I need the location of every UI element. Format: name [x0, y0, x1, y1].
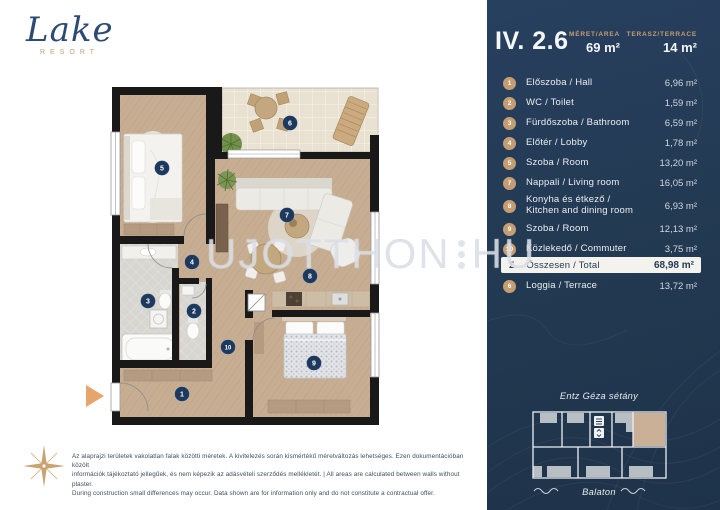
area-stat-value: 69 m² — [569, 40, 620, 55]
area-stat-label: MÉRET/AREA — [569, 31, 620, 38]
room-number-badge: 10 — [503, 243, 516, 256]
room-name: Közlekedő / Commuter — [526, 244, 627, 255]
svg-text:4: 4 — [190, 260, 194, 267]
room-number-badge: 3 — [503, 117, 516, 130]
brand-name: Lake — [26, 12, 114, 48]
plan-marker: 3 — [141, 294, 156, 309]
room-row: 8 Konyha és étkező / Kitchen and dining … — [503, 193, 697, 219]
room-name: WC / Toilet — [526, 98, 574, 109]
room-area: 6,59 m² — [665, 118, 697, 129]
room-list: 1 Előszoba / Hall 6,96 m² 2 WC / Toilet … — [503, 73, 697, 259]
room-area: 16,05 m² — [660, 178, 698, 189]
room-name: Előtér / Lobby — [526, 138, 587, 149]
svg-text:3: 3 — [146, 299, 150, 306]
elevator-icon — [594, 428, 604, 438]
room-row: 5 Szoba / Room 13,20 m² — [503, 153, 697, 173]
disclaimer: Az alaprajzi területek vakolatlan falak … — [72, 452, 474, 498]
plan-marker: 10 — [221, 340, 236, 355]
highlighted-unit — [633, 413, 665, 446]
svg-text:10: 10 — [225, 346, 232, 352]
svg-text:2: 2 — [192, 309, 196, 316]
svg-text:6: 6 — [288, 121, 292, 128]
svg-text:8: 8 — [308, 274, 312, 281]
room-row: 2 WC / Toilet 1,59 m² — [503, 93, 697, 113]
plan-marker: 1 — [175, 387, 190, 402]
terrace-stat-value: 14 m² — [627, 40, 697, 55]
room-row: 10 Közlekedő / Commuter 3,75 m² — [503, 239, 697, 259]
room-name: Nappali / Living room — [526, 178, 619, 189]
room-name: Előszoba / Hall — [526, 78, 592, 89]
room-number-badge: 5 — [503, 157, 516, 170]
brand-logo: Lake RESORT — [26, 12, 114, 56]
room-number-badge: 4 — [503, 137, 516, 150]
room-area: 1,78 m² — [665, 138, 697, 149]
area-stat: MÉRET/AREA 69 m² — [569, 31, 620, 55]
site-map: Entz Géza sétány — [487, 385, 720, 510]
svg-text:9: 9 — [312, 361, 316, 368]
room-area: 3,75 m² — [665, 244, 697, 255]
room-number-badge: 6 — [503, 280, 516, 293]
terrace-stat-label: TERASZ/TERRACE — [627, 31, 697, 38]
room-row: 3 Fürdőszoba / Bathroom 6,59 m² — [503, 113, 697, 133]
plan-marker: 2 — [187, 304, 202, 319]
room-name: Loggia / Terrace — [526, 281, 597, 292]
compass-icon — [22, 444, 66, 488]
room-number-badge: 2 — [503, 97, 516, 110]
room-number-badge: 8 — [503, 200, 516, 213]
room-area: 1,59 m² — [665, 98, 697, 109]
bedroom-5-furniture — [124, 131, 182, 235]
svg-text:7: 7 — [285, 213, 289, 220]
room-number-badge: 7 — [503, 177, 516, 190]
brand-tagline: RESORT — [26, 49, 114, 56]
sigma-symbol: Σ — [509, 260, 514, 270]
room-name: Fürdőszoba / Bathroom — [526, 118, 629, 129]
room-number-badge: 1 — [503, 77, 516, 90]
svg-text:1: 1 — [180, 392, 184, 399]
room-row: 7 Nappali / Living room 16,05 m² — [503, 173, 697, 193]
svg-text:5: 5 — [160, 166, 164, 173]
room-name: Szoba / Room — [526, 224, 589, 235]
room-name: Konyha és étkező / Kitchen and dining ro… — [526, 195, 633, 217]
room-area: 12,13 m² — [660, 224, 698, 235]
room-name: Szoba / Room — [526, 158, 589, 169]
plan-marker: 5 — [155, 161, 170, 176]
room-row: 1 Előszoba / Hall 6,96 m² — [503, 73, 697, 93]
total-row: Σ Összesen / Total 68,98 m² — [501, 257, 701, 273]
total-area: 68,98 m² — [654, 260, 694, 271]
room-row: 4 Előtér / Lobby 1,78 m² — [503, 133, 697, 153]
disclaimer-line: Az alaprajzi területek vakolatlan falak … — [72, 452, 474, 470]
room-row: 9 Szoba / Room 12,13 m² — [503, 219, 697, 239]
unit-id: IV. 2.6 — [495, 27, 568, 56]
street-label: Entz Géza sétány — [560, 391, 639, 401]
disclaimer-line: During construction small differences ma… — [72, 489, 474, 498]
terrace-stat: TERASZ/TERRACE 14 m² — [627, 31, 697, 55]
floor-plan-drawing: 1 2 3 4 5 6 7 8 9 10 — [0, 0, 487, 510]
room-area: 6,93 m² — [665, 201, 697, 212]
plan-marker: 6 — [283, 116, 298, 131]
plan-marker: 8 — [303, 269, 318, 284]
room-area: 13,20 m² — [660, 158, 698, 169]
entrance-arrow-icon — [86, 385, 104, 407]
stairs-icon — [594, 416, 604, 426]
loggia-row: 6 Loggia / Terrace 13,72 m² — [503, 278, 697, 294]
info-panel: IV. 2.6 MÉRET/AREA 69 m² TERASZ/TERRACE … — [487, 0, 720, 510]
floorplan-brochure-page: { "brand": { "name": "Lake", "tagline": … — [0, 0, 720, 510]
hall-furniture — [124, 370, 212, 381]
room-number-badge: 9 — [503, 223, 516, 236]
plan-marker: 4 — [185, 255, 200, 270]
plan-marker: 9 — [307, 356, 322, 371]
total-label: Összesen / Total — [526, 260, 599, 271]
room-area: 6,96 m² — [665, 78, 697, 89]
disclaimer-line: információk tájékoztató jellegűek, és ne… — [72, 470, 474, 488]
room-area: 13,72 m² — [660, 281, 698, 292]
plan-marker: 7 — [280, 208, 295, 223]
lake-label: Balaton — [582, 487, 616, 497]
